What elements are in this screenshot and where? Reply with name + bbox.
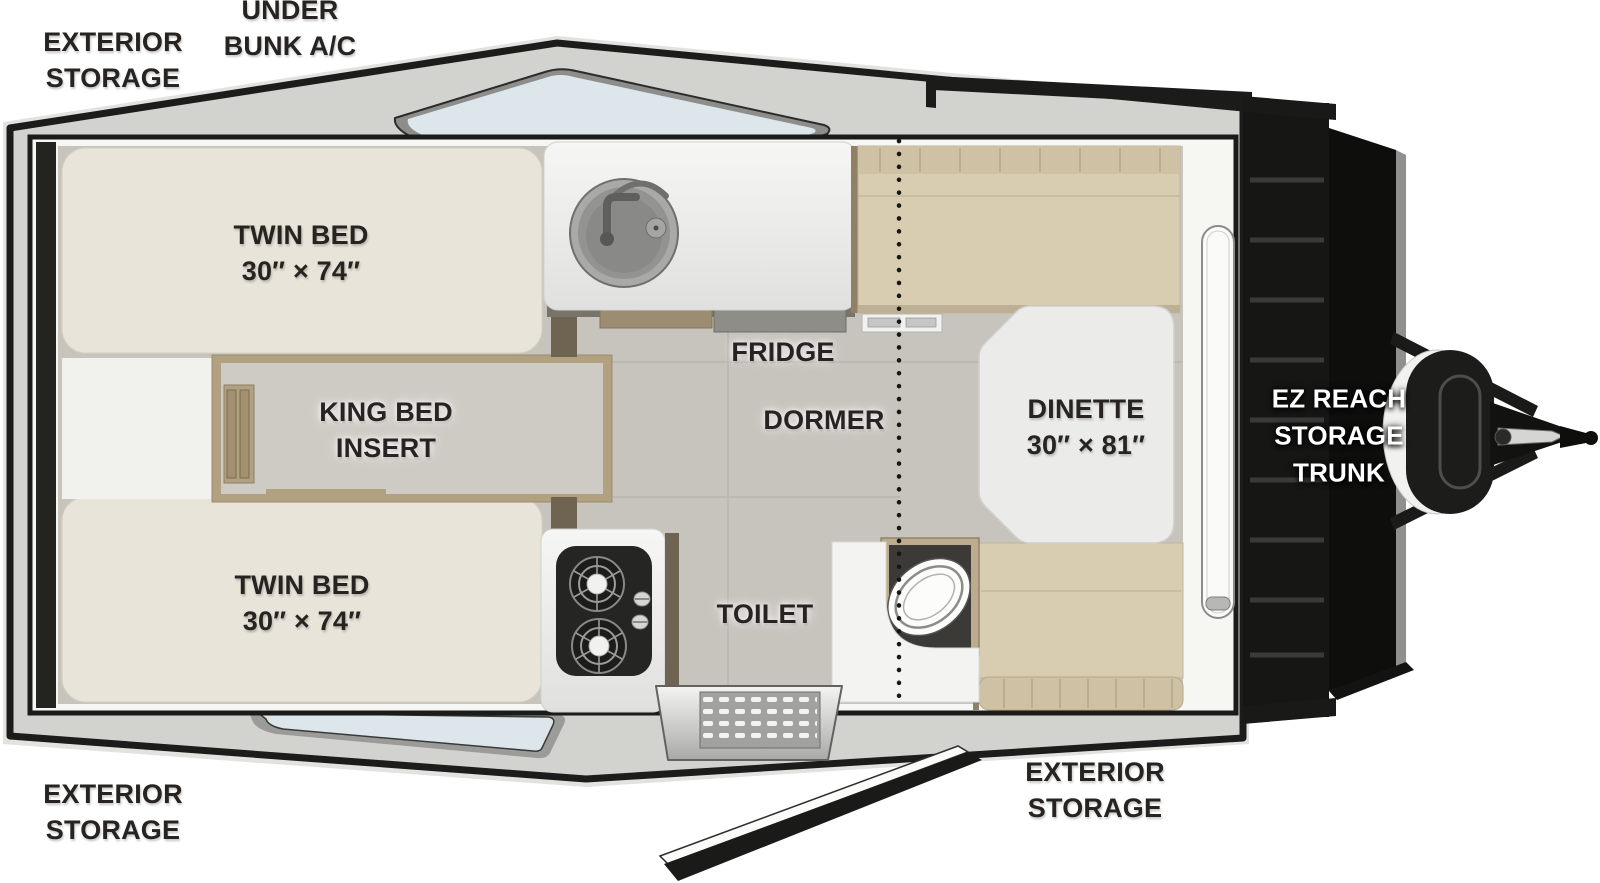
toilet-cabinet bbox=[832, 538, 985, 702]
label-line: EXTERIOR bbox=[1025, 754, 1165, 790]
label-line: UNDER bbox=[224, 0, 357, 28]
hitch bbox=[1383, 332, 1598, 530]
label-line: STORAGE bbox=[1025, 790, 1165, 826]
floorplan-diagram: EXTERIOR STORAGE UNDER BUNK A/C TWIN BED… bbox=[0, 0, 1600, 883]
left-wall-band bbox=[36, 142, 56, 708]
right-wall-window bbox=[1202, 226, 1234, 618]
label-king-bed-insert: KING BED INSERT bbox=[319, 394, 453, 466]
label-dormer: DORMER bbox=[763, 402, 884, 438]
label-line: EXTERIOR bbox=[43, 24, 183, 60]
label-line: STORAGE bbox=[43, 60, 183, 96]
label-line: 30″ × 81″ bbox=[1027, 427, 1146, 463]
entry-step bbox=[656, 686, 842, 760]
burner-bottom bbox=[572, 619, 626, 673]
label-line: STORAGE bbox=[43, 812, 183, 848]
kitchen-counter bbox=[544, 142, 856, 332]
label-ez-reach-storage-trunk: EZ REACH STORAGE TRUNK bbox=[1272, 381, 1407, 492]
label-line: 30″ × 74″ bbox=[234, 603, 369, 639]
dinette-bench-bottom bbox=[973, 543, 1183, 710]
window-handle bbox=[1206, 597, 1230, 610]
label-fridge: FRIDGE bbox=[731, 334, 834, 370]
label-twin-bed-bottom: TWIN BED 30″ × 74″ bbox=[234, 567, 369, 639]
roof-flange-jog bbox=[926, 76, 936, 108]
label-line: TWIN BED bbox=[234, 567, 369, 603]
under-counter-wood bbox=[600, 310, 712, 328]
jack-mount bbox=[1495, 429, 1511, 445]
label-exterior-storage-top-left: EXTERIOR STORAGE bbox=[43, 24, 183, 96]
label-line: 30″ × 74″ bbox=[233, 253, 368, 289]
label-line: TRUNK bbox=[1272, 455, 1407, 492]
stove bbox=[541, 529, 679, 712]
label-line: EZ REACH bbox=[1272, 381, 1407, 418]
label-line: DINETTE bbox=[1027, 391, 1146, 427]
label-toilet: TOILET bbox=[717, 596, 814, 632]
coupler-tip bbox=[1560, 426, 1586, 448]
label-line: INSERT bbox=[319, 430, 453, 466]
king-insert-plank bbox=[266, 489, 386, 498]
label-dinette: DINETTE 30″ × 81″ bbox=[1027, 391, 1146, 463]
burner-top bbox=[570, 557, 624, 611]
label-twin-bed-top: TWIN BED 30″ × 74″ bbox=[233, 217, 368, 289]
label-exterior-storage-bottom-left: EXTERIOR STORAGE bbox=[43, 776, 183, 848]
king-insert-cabinet bbox=[224, 385, 254, 483]
label-exterior-storage-bottom-right: EXTERIOR STORAGE bbox=[1025, 754, 1165, 826]
wood-post-top bbox=[551, 310, 577, 357]
hitch-ball bbox=[1584, 431, 1598, 445]
furnace-vent bbox=[862, 314, 942, 332]
fridge-cabinet bbox=[714, 308, 846, 332]
king-insert-platform bbox=[62, 358, 212, 499]
label-line: STORAGE bbox=[1272, 418, 1407, 455]
label-line: BUNK A/C bbox=[224, 28, 357, 64]
label-line: EXTERIOR bbox=[43, 776, 183, 812]
label-line: KING BED bbox=[319, 394, 453, 430]
label-line: TWIN BED bbox=[233, 217, 368, 253]
label-under-bunk-ac: UNDER BUNK A/C bbox=[224, 0, 357, 64]
